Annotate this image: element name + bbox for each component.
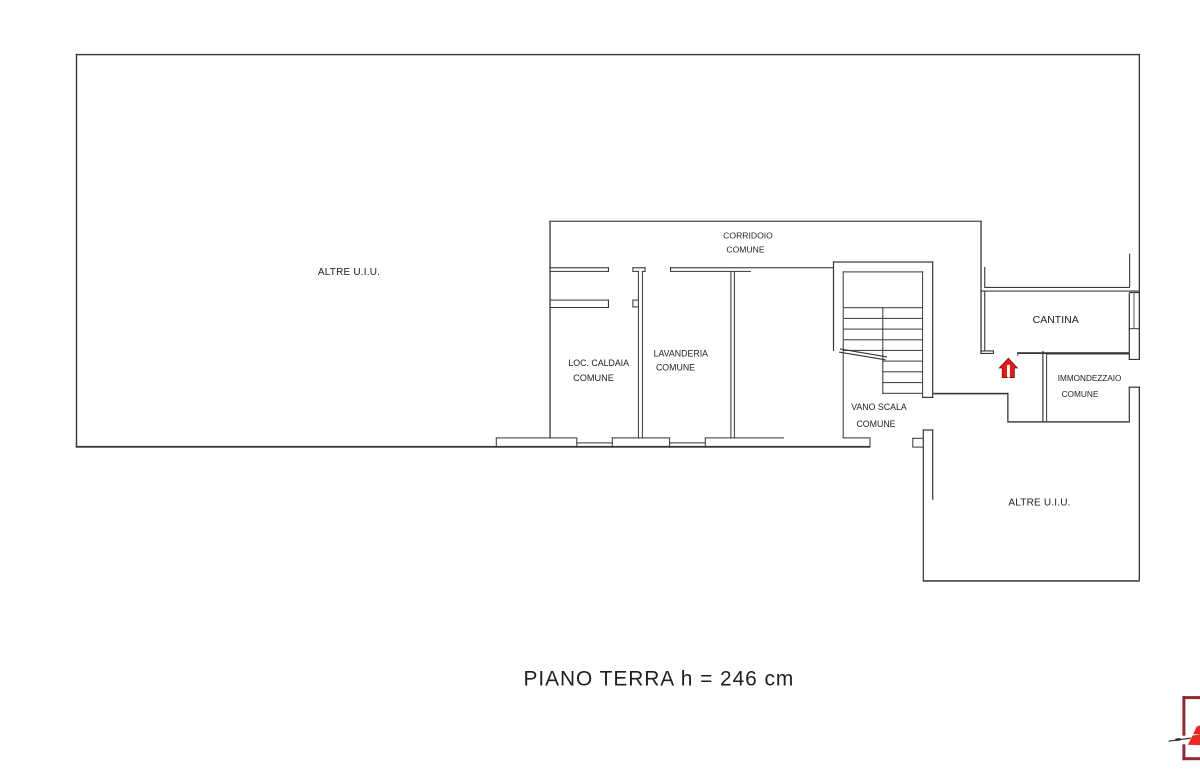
svg-text:VANO SCALA: VANO SCALA bbox=[851, 402, 907, 412]
svg-text:COMUNE: COMUNE bbox=[856, 419, 895, 429]
svg-text:CANTINA: CANTINA bbox=[1033, 314, 1079, 326]
svg-text:LOC. CALDAIA: LOC. CALDAIA bbox=[568, 358, 629, 368]
svg-text:COMUNE: COMUNE bbox=[1062, 389, 1099, 399]
svg-text:PIANO TERRA h = 246 cm: PIANO TERRA h = 246 cm bbox=[524, 668, 795, 691]
svg-text:LAVANDERIA: LAVANDERIA bbox=[654, 348, 709, 358]
svg-text:CORRIDOIO: CORRIDOIO bbox=[723, 231, 773, 241]
svg-text:COMUNE: COMUNE bbox=[726, 245, 764, 255]
svg-text:ALTRE U.I.U.: ALTRE U.I.U. bbox=[1008, 498, 1070, 509]
svg-text:COMUNE: COMUNE bbox=[656, 363, 695, 373]
svg-text:COMUNE: COMUNE bbox=[573, 373, 614, 383]
svg-text:IMMONDEZZAIO: IMMONDEZZAIO bbox=[1058, 374, 1122, 383]
svg-text:ALTRE U.I.U.: ALTRE U.I.U. bbox=[318, 267, 380, 278]
